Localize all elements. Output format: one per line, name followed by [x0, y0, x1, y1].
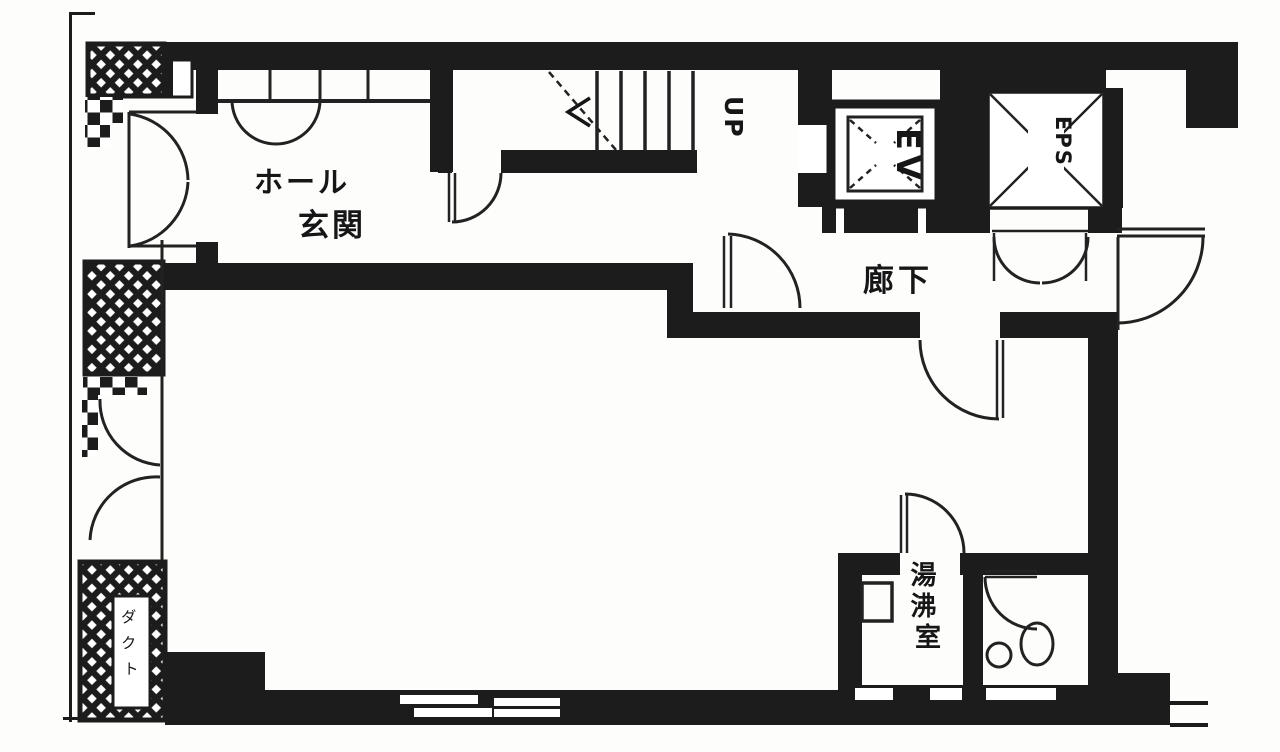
- hatch-box-mid-left: [85, 262, 163, 374]
- room-label-elevator: EV: [889, 128, 927, 185]
- checker-step-top2: [85, 123, 110, 147]
- room-label-kitchenette: 湯 沸 室: [910, 561, 945, 653]
- hatch-box-top-left: [88, 44, 164, 96]
- room-label-eps: EPS: [1051, 116, 1075, 167]
- checker-strip-h: [83, 377, 147, 395]
- floor-plan-drawing: EV EPS ホール 玄関 UP 廊下 湯 沸 室 ダ ク ト: [0, 0, 1280, 752]
- floor-plan-page: EV EPS ホール 玄関 UP 廊下 湯 沸 室 ダ ク ト: [0, 0, 1280, 752]
- checker-strip-v: [82, 395, 98, 457]
- eps-shaft: EPS: [988, 92, 1104, 208]
- room-label-corridor: 廊下: [863, 263, 933, 299]
- elevator-shaft: EV: [831, 104, 939, 204]
- room-label-hall-line2: 玄関: [298, 208, 366, 244]
- stair-up-label: UP: [719, 96, 748, 139]
- room-label-hall-line1: ホール: [254, 165, 350, 199]
- checker-step-top: [85, 97, 123, 123]
- room-label-duct: ダ ク ト: [121, 608, 141, 678]
